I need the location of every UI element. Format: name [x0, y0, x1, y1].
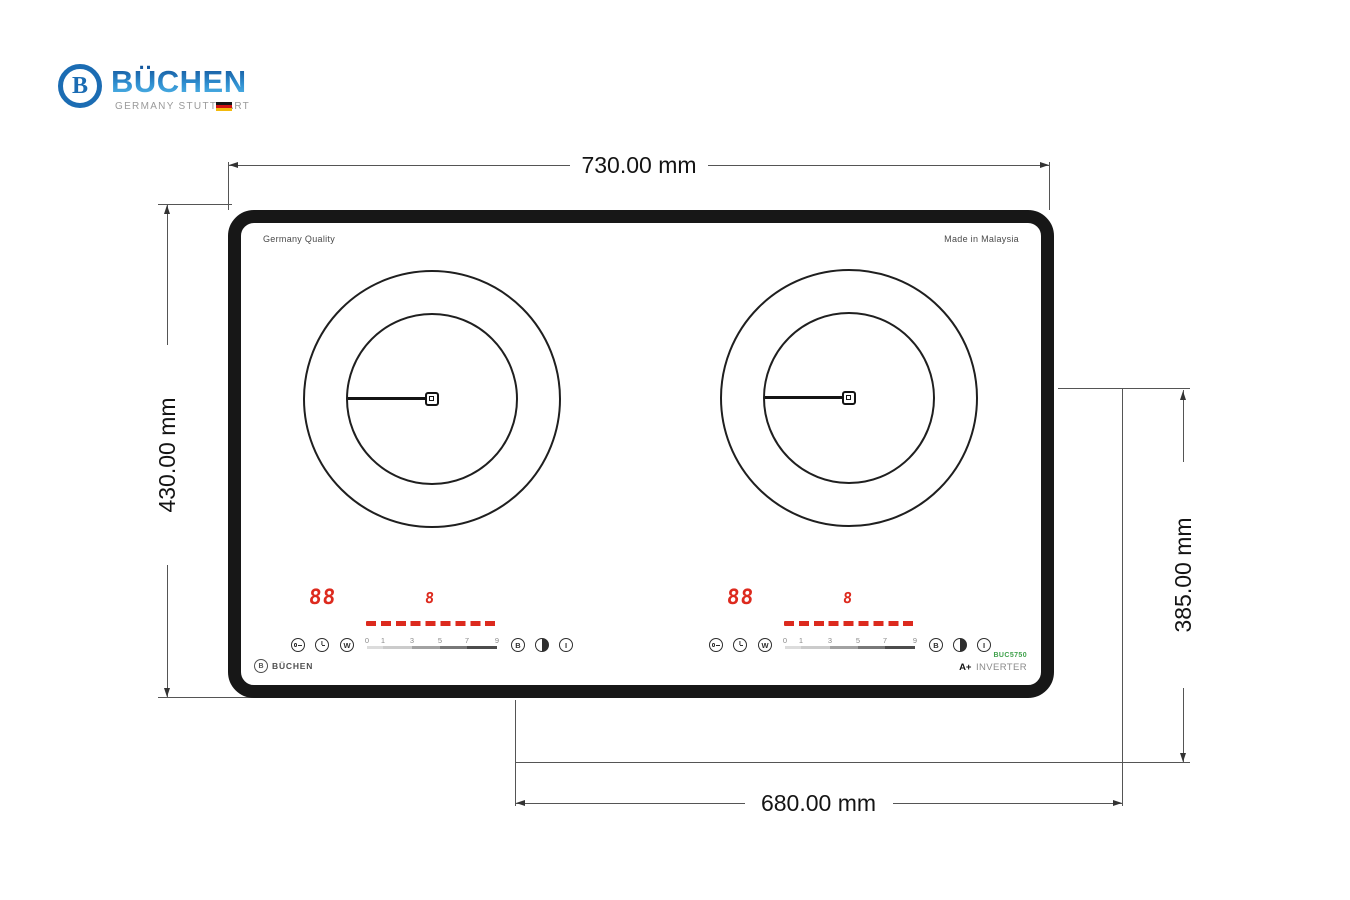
left-burner-center-icon: [425, 392, 439, 406]
dim-line: [1183, 688, 1184, 762]
right-wok-button: W: [758, 638, 772, 652]
scale-bar: [367, 646, 383, 649]
right-level-display: 8: [842, 589, 854, 607]
scale-number: 3: [828, 636, 832, 645]
extension-line: [1058, 388, 1190, 389]
scale-bar: [440, 646, 467, 649]
dim-overall-depth: 430.00 mm: [152, 345, 182, 565]
extension-line: [1049, 162, 1050, 210]
dim-line: [167, 565, 168, 697]
scale-bar: [383, 646, 412, 649]
arrow-right-icon: [1113, 800, 1122, 806]
right-power-scale: 0 1 3 5 7 9: [778, 636, 918, 652]
inverter-label: INVERTER: [976, 662, 1027, 673]
right-burner-radius-line: [765, 396, 842, 399]
arrow-up-icon: [164, 205, 170, 214]
left-power-button: I: [559, 638, 573, 652]
right-power-display: 88: [726, 585, 755, 609]
cooktop-brand-mark: B BÜCHEN: [254, 659, 313, 673]
extension-line: [158, 204, 232, 205]
energy-class: A+: [959, 662, 971, 673]
brand-name: BÜCHEN: [111, 64, 247, 100]
right-lock-button-icon: [709, 638, 723, 652]
right-booster-button: B: [929, 638, 943, 652]
cooktop-brand-label: BÜCHEN: [272, 661, 313, 671]
left-level-dashes: [366, 621, 500, 626]
quality-label: Germany Quality: [263, 234, 335, 244]
scale-number: 1: [381, 636, 385, 645]
left-wok-button: W: [340, 638, 354, 652]
arrow-down-icon: [164, 688, 170, 697]
origin-label: Made in Malaysia: [944, 234, 1019, 244]
dim-line: [1183, 390, 1184, 462]
scale-bar: [830, 646, 858, 649]
scale-number: 5: [438, 636, 442, 645]
scale-number: 5: [856, 636, 860, 645]
energy-rating: A+ INVERTER: [959, 661, 1027, 673]
scale-number: 9: [495, 636, 499, 645]
buchen-mini-logo-icon: B: [254, 659, 268, 673]
brand-logo-icon: B: [58, 64, 102, 108]
left-booster-button: B: [511, 638, 525, 652]
left-power-display: 88: [308, 585, 337, 609]
extension-line: [228, 162, 229, 210]
left-level-display: 8: [424, 589, 436, 607]
right-pause-button-icon: [953, 638, 967, 652]
right-level-dashes: [784, 621, 918, 626]
dim-overall-width: 730.00 mm: [228, 152, 1050, 179]
cutout-bottom-line: [515, 762, 1190, 763]
model-number: BUC5750: [959, 651, 1027, 661]
scale-number: 7: [465, 636, 469, 645]
induction-cooktop: Germany Quality Made in Malaysia 88 8 W …: [228, 210, 1054, 698]
left-burner-radius-line: [348, 397, 425, 400]
dim-cutout-width: 680.00 mm: [515, 790, 1122, 817]
arrow-left-icon: [229, 162, 238, 168]
left-timer-button-icon: [315, 638, 329, 652]
right-power-button: I: [977, 638, 991, 652]
scale-number: 7: [883, 636, 887, 645]
brand-logo-letter: B: [72, 73, 88, 100]
arrow-down-icon: [1180, 753, 1186, 762]
right-burner-center-icon: [842, 391, 856, 405]
model-info: BUC5750 A+ INVERTER: [959, 651, 1027, 673]
left-power-scale: 0 1 3 5 7 9: [360, 636, 500, 652]
left-lock-button-icon: [291, 638, 305, 652]
right-timer-button-icon: [733, 638, 747, 652]
scale-bar: [785, 646, 801, 649]
scale-bar: [801, 646, 830, 649]
dim-line: [167, 204, 168, 345]
scale-bar: [412, 646, 440, 649]
scale-bar: [467, 646, 497, 649]
left-pause-button-icon: [535, 638, 549, 652]
dim-cutout-depth: 385.00 mm: [1168, 465, 1198, 685]
arrow-right-icon: [1040, 162, 1049, 168]
arrow-up-icon: [1180, 391, 1186, 400]
cutout-right-line: [1122, 388, 1123, 806]
scale-number: 3: [410, 636, 414, 645]
arrow-left-icon: [516, 800, 525, 806]
germany-flag-icon: [216, 102, 232, 111]
scale-bar: [858, 646, 885, 649]
scale-number: 9: [913, 636, 917, 645]
spec-diagram-page: B BÜCHEN GERMANY STUTTGART 730.00 mm 430…: [0, 0, 1350, 900]
scale-number: 0: [783, 636, 787, 645]
scale-number: 1: [799, 636, 803, 645]
scale-number: 0: [365, 636, 369, 645]
scale-bar: [885, 646, 915, 649]
